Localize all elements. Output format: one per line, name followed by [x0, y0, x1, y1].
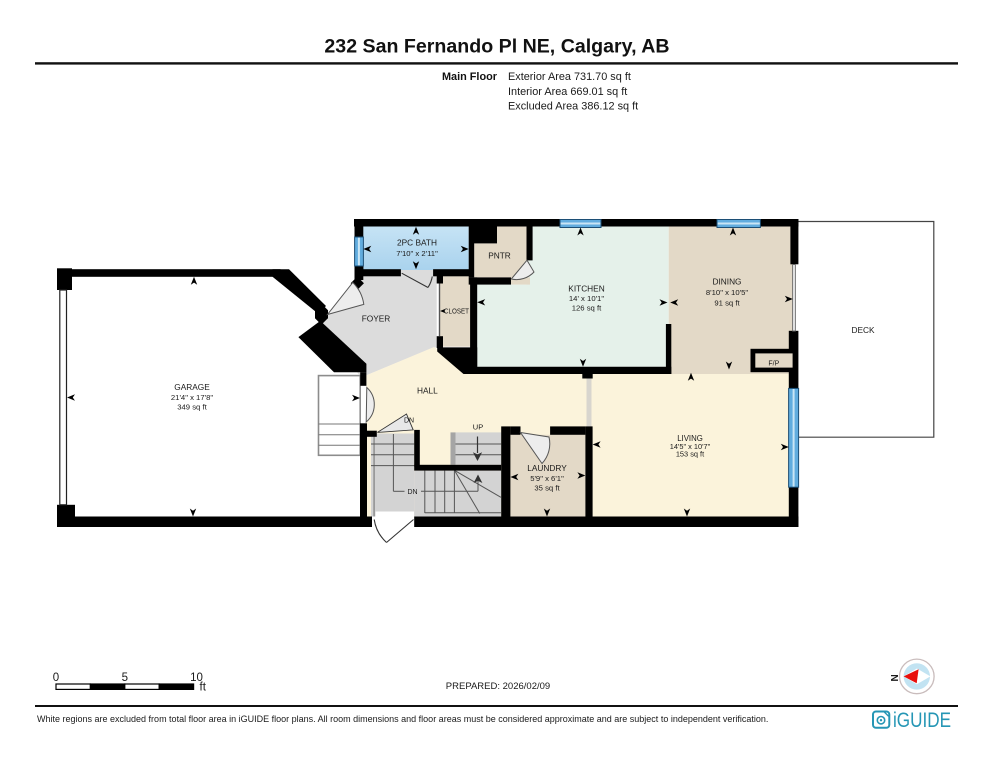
svg-text:232 San Fernando Pl NE, Calgar: 232 San Fernando Pl NE, Calgary, AB: [324, 36, 669, 58]
svg-text:LAUNDRY: LAUNDRY: [527, 463, 567, 473]
svg-text:2PC BATH: 2PC BATH: [397, 237, 437, 247]
svg-text:0: 0: [53, 672, 59, 684]
svg-text:Exterior Area 731.70 sq ft: Exterior Area 731.70 sq ft: [508, 71, 631, 83]
svg-text:FOYER: FOYER: [362, 314, 391, 324]
svg-text:126 sq ft: 126 sq ft: [572, 304, 602, 313]
svg-text:N: N: [890, 674, 901, 681]
svg-text:Excluded Area 386.12 sq ft: Excluded Area 386.12 sq ft: [508, 101, 638, 113]
svg-text:Main Floor: Main Floor: [442, 71, 498, 83]
svg-text:DECK: DECK: [851, 325, 875, 335]
svg-text:349 sq ft: 349 sq ft: [177, 403, 207, 412]
svg-text:DN: DN: [404, 418, 414, 425]
svg-text:PNTR: PNTR: [488, 251, 511, 261]
svg-text:DN: DN: [407, 489, 417, 496]
svg-text:HALL: HALL: [417, 386, 438, 396]
svg-text:35 sq ft: 35 sq ft: [534, 484, 560, 493]
svg-text:5'9" x 6'1": 5'9" x 6'1": [530, 474, 564, 483]
svg-text:DINING: DINING: [712, 276, 741, 286]
svg-text:iGUIDE: iGUIDE: [893, 709, 951, 732]
svg-text:91 sq ft: 91 sq ft: [714, 299, 740, 308]
svg-text:CLOSET: CLOSET: [444, 309, 470, 316]
svg-text:KITCHEN: KITCHEN: [568, 283, 604, 293]
svg-text:21'4" x 17'8": 21'4" x 17'8": [171, 393, 213, 402]
svg-text:Interior Area 669.01 sq ft: Interior Area 669.01 sq ft: [508, 86, 627, 98]
svg-text:F/P: F/P: [768, 361, 779, 368]
svg-text:ft: ft: [200, 682, 207, 694]
svg-text:153 sq ft: 153 sq ft: [676, 450, 704, 459]
svg-text:White regions are excluded fro: White regions are excluded from total fl…: [37, 714, 768, 724]
svg-text:7'10" x 2'11": 7'10" x 2'11": [396, 249, 438, 258]
svg-text:PREPARED: 2026/02/09: PREPARED: 2026/02/09: [446, 681, 550, 692]
svg-text:UP: UP: [473, 423, 483, 432]
svg-text:GARAGE: GARAGE: [174, 382, 210, 392]
svg-text:8'10" x 10'5": 8'10" x 10'5": [706, 288, 748, 297]
svg-text:14' x 10'1": 14' x 10'1": [569, 294, 604, 303]
svg-text:5: 5: [122, 672, 128, 684]
